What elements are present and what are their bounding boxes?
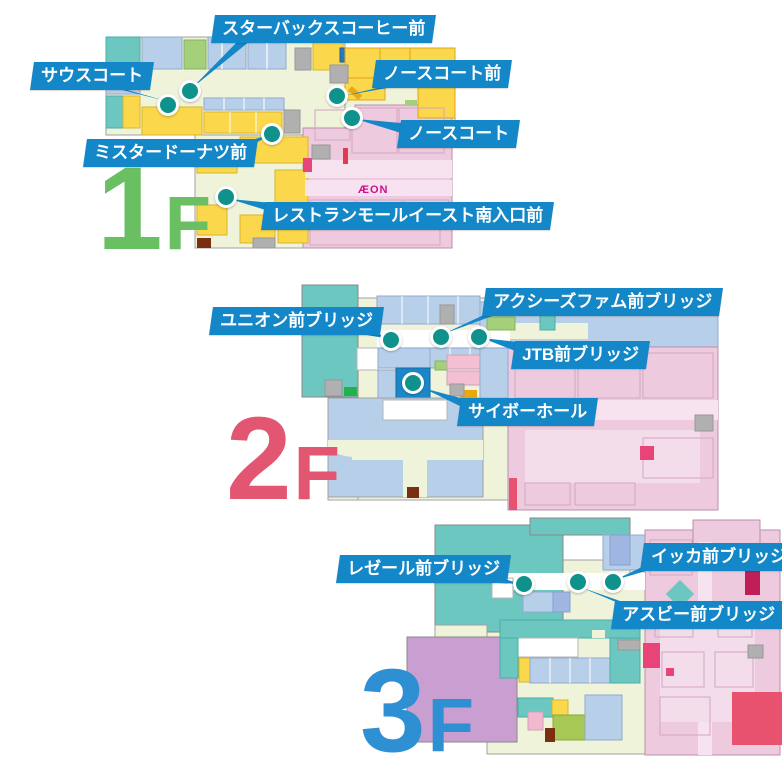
- callout-north-court: ノースコート: [397, 120, 520, 148]
- floor-number: 1: [97, 163, 163, 255]
- callout-text: サイボーホール: [468, 403, 587, 420]
- marker-jtb-front-bridge: [468, 326, 490, 348]
- callout-axes-femme-front-bridge: アクシーズファム前ブリッジ: [482, 288, 723, 316]
- callout-north-court-front: ノースコート前: [372, 60, 512, 88]
- callout-text: ミスタードーナツ前: [94, 144, 247, 161]
- marker-axes-femme-front-bridge: [430, 326, 452, 348]
- callout-text: レストランモールイースト南入口前: [272, 207, 543, 224]
- floor-suffix: F: [165, 194, 211, 255]
- callout-text: サウスコート: [41, 67, 143, 84]
- callout-jtb-front-bridge: JTB前ブリッジ: [511, 341, 650, 369]
- marker-mister-donut-front: [261, 123, 283, 145]
- marker-starbucks-front: [179, 80, 201, 102]
- callout-south-court: サウスコート: [30, 62, 154, 90]
- callout-ikka-front-bridge: イッカ前ブリッジ: [640, 543, 782, 571]
- marker-saibo-hall: [402, 372, 424, 394]
- callout-text: アスビー前ブリッジ: [622, 606, 775, 623]
- floor-label-3f: 3F: [360, 665, 474, 757]
- marker-north-court: [341, 107, 363, 129]
- floor-suffix: F: [294, 444, 340, 505]
- marker-lezere-front-bridge: [513, 573, 535, 595]
- callout-saibo-hall: サイボーホール: [457, 398, 598, 426]
- callout-text: レゼール前ブリッジ: [347, 560, 500, 577]
- marker-union-front-bridge: [380, 329, 402, 351]
- callout-text: アクシーズファム前ブリッジ: [493, 293, 712, 310]
- marker-ikka-front-bridge: [602, 571, 624, 593]
- callout-starbucks-front: スターバックスコーヒー前: [211, 15, 436, 43]
- floor-label-1f: 1F: [97, 163, 211, 255]
- callout-asbee-front-bridge: アスビー前ブリッジ: [611, 601, 782, 629]
- floor-suffix: F: [428, 696, 474, 757]
- marker-asbee-front-bridge: [567, 571, 589, 593]
- callout-mister-donut-front: ミスタードーナツ前: [83, 139, 258, 167]
- aeon-logo: ÆON: [358, 184, 389, 196]
- callout-text: ノースコート: [408, 125, 509, 142]
- callout-text: ノースコート前: [383, 65, 501, 82]
- callout-text: イッカ前ブリッジ: [651, 548, 782, 565]
- callout-union-front-bridge: ユニオン前ブリッジ: [209, 307, 384, 335]
- callout-lezere-front-bridge: レゼール前ブリッジ: [336, 555, 511, 583]
- floor-number: 3: [360, 665, 426, 757]
- callout-text: ユニオン前ブリッジ: [220, 312, 373, 329]
- marker-north-court-front: [326, 85, 348, 107]
- callout-text: JTB前ブリッジ: [522, 346, 639, 363]
- marker-restaurant-mall-east: [215, 186, 237, 208]
- marker-south-court: [157, 94, 179, 116]
- floor-number: 2: [226, 413, 292, 505]
- mall-floor-maps-page: ÆON: [0, 0, 782, 768]
- floor-label-2f: 2F: [226, 413, 340, 505]
- callout-text: スターバックスコーヒー前: [222, 20, 425, 37]
- callout-restaurant-mall-east: レストランモールイースト南入口前: [261, 202, 554, 230]
